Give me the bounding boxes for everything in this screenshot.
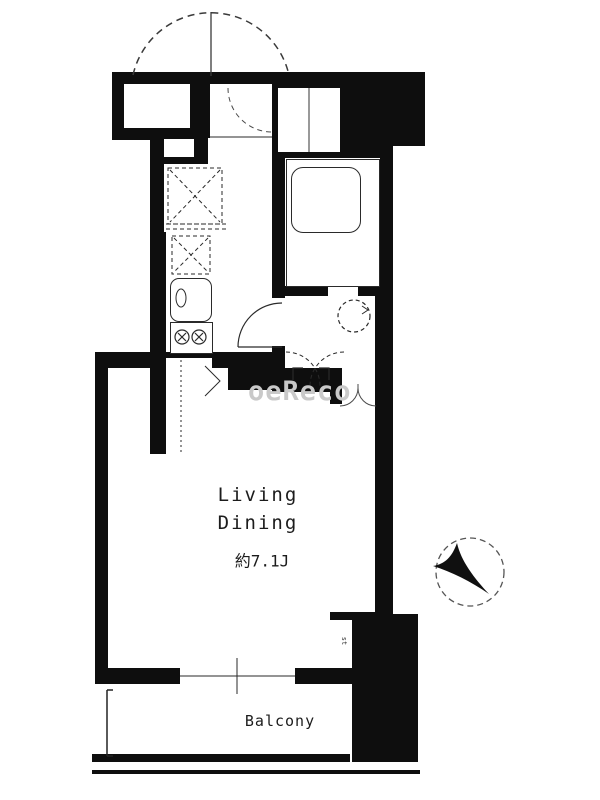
refrigerator-outline <box>172 236 210 274</box>
compass-north-arrow <box>433 538 504 606</box>
window-lines <box>180 658 295 694</box>
floor-plan: MB Entrance Shoes Closet PS Hall W/D R K… <box>0 0 600 800</box>
entrance-door-swing <box>133 12 289 137</box>
stove-burners <box>175 330 206 344</box>
wash-basin <box>338 300 370 332</box>
kitchen-door-swing <box>238 303 282 347</box>
closet-door-symbol <box>181 360 220 452</box>
watermark: oeReco <box>248 376 352 407</box>
balcony-divider-line <box>107 690 113 756</box>
washer-dryer-outline <box>166 168 226 229</box>
sink-drain <box>176 289 186 307</box>
